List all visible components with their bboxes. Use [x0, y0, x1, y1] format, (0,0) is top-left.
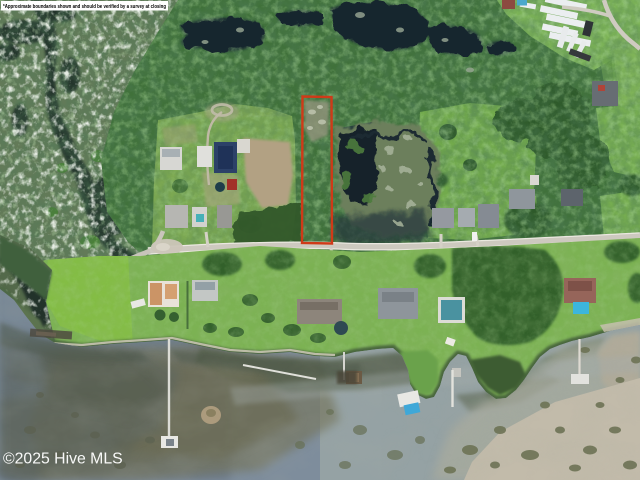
- svg-text:©2025 Hive MLS: ©2025 Hive MLS: [3, 451, 123, 468]
- svg-text:*Approximate boundaries shown: *Approximate boundaries shown and should…: [3, 4, 166, 10]
